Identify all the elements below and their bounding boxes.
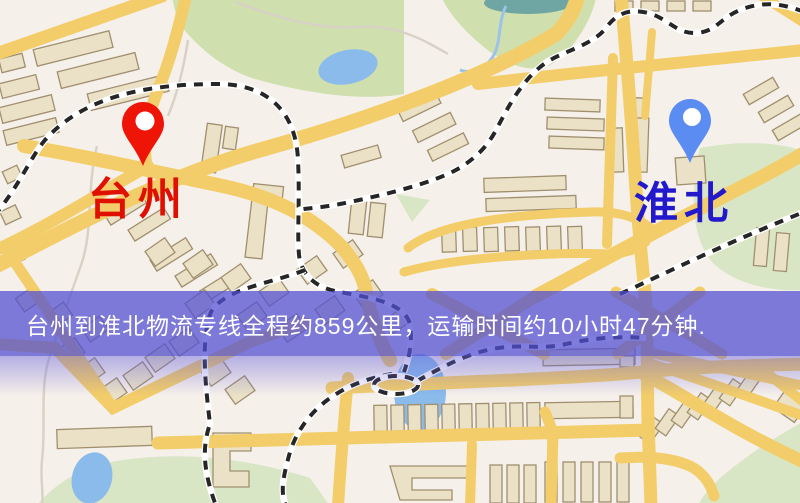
origin-pin-icon[interactable] bbox=[119, 100, 167, 170]
logistics-route-map: 台州到淮北物流专线全程约859公里，运输时间约10小时47分钟. 台州 淮北 bbox=[0, 0, 800, 503]
route-info-banner: 台州到淮北物流专线全程约859公里，运输时间约10小时47分钟. bbox=[0, 291, 800, 356]
route-info-text: 台州到淮北物流专线全程约859公里，运输时间约10小时47分钟. bbox=[0, 307, 706, 341]
origin-label: 台州 bbox=[88, 178, 188, 222]
destination-label: 淮北 bbox=[634, 182, 734, 226]
map-background bbox=[0, 0, 800, 503]
destination-pin-icon[interactable] bbox=[666, 97, 714, 167]
